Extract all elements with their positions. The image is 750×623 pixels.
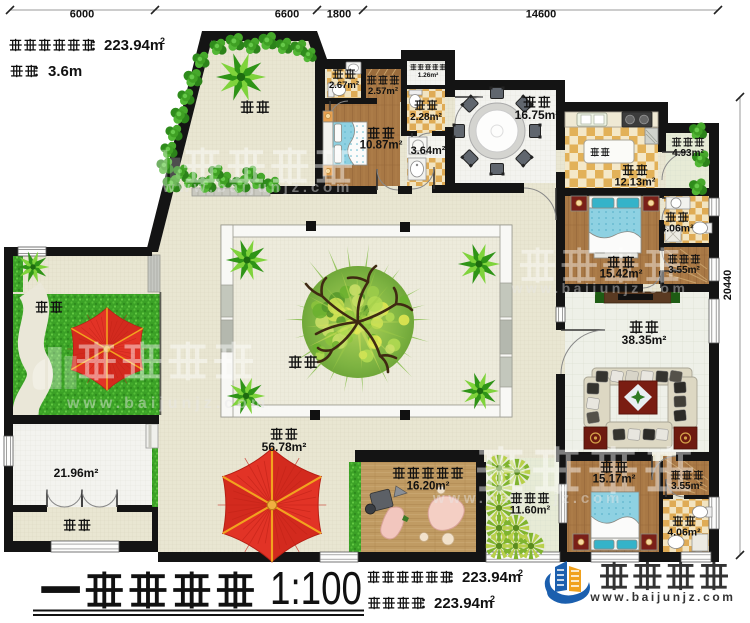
svg-text:16.20m²: 16.20m²	[407, 481, 450, 493]
svg-text:223.94m: 223.94m	[462, 569, 521, 586]
svg-text:3.55m²: 3.55m²	[668, 265, 700, 276]
svg-text:11.60m²: 11.60m²	[510, 505, 551, 517]
svg-text:14600: 14600	[526, 9, 557, 21]
svg-text:3.55m²: 3.55m²	[671, 481, 703, 492]
svg-text:1.26m²: 1.26m²	[418, 72, 439, 79]
svg-text:2: 2	[160, 36, 165, 46]
svg-text:www.baijunjz.com: www.baijunjz.com	[66, 395, 269, 412]
svg-text:www.baijunjz.com: www.baijunjz.com	[589, 590, 735, 604]
svg-text:：: ：	[33, 63, 47, 79]
svg-text:1800: 1800	[327, 9, 351, 21]
svg-text:6000: 6000	[70, 9, 94, 21]
svg-text:4.06m²: 4.06m²	[660, 222, 694, 234]
svg-text:10.87m²: 10.87m²	[360, 140, 403, 152]
svg-text:2: 2	[518, 568, 523, 578]
svg-text:：: ：	[90, 37, 104, 53]
svg-text:20440: 20440	[722, 270, 734, 301]
svg-text:：: ：	[420, 595, 434, 611]
svg-text:2.28m²: 2.28m²	[410, 112, 442, 123]
svg-text:1:100: 1:100	[270, 562, 362, 614]
svg-text:15.42m²: 15.42m²	[600, 269, 643, 281]
svg-text:56.78m²: 56.78m²	[262, 440, 307, 454]
svg-text:15.17m²: 15.17m²	[593, 474, 636, 486]
svg-text:4.06m²: 4.06m²	[667, 526, 701, 538]
svg-text:16.75m²: 16.75m²	[515, 108, 560, 122]
svg-text:3.64m²: 3.64m²	[411, 145, 446, 157]
svg-text:21.96m²: 21.96m²	[54, 466, 99, 480]
svg-text:223.94m: 223.94m	[434, 595, 493, 612]
svg-text:223.94m: 223.94m	[104, 37, 163, 54]
svg-text:38.35m²: 38.35m²	[622, 333, 667, 347]
svg-text:www.baijunjz.com: www.baijunjz.com	[511, 280, 689, 296]
svg-text:www.baijunjz.com: www.baijunjz.com	[162, 179, 353, 196]
svg-text:：: ：	[448, 569, 462, 585]
svg-text:2: 2	[490, 594, 495, 604]
svg-text:3.6m: 3.6m	[48, 63, 82, 80]
svg-text:2.67m²: 2.67m²	[329, 80, 359, 91]
svg-text:12.13m²: 12.13m²	[615, 177, 656, 189]
svg-text:4.93m²: 4.93m²	[672, 148, 704, 159]
svg-text:6600: 6600	[275, 9, 299, 21]
svg-text:2.57m²: 2.57m²	[368, 86, 398, 97]
